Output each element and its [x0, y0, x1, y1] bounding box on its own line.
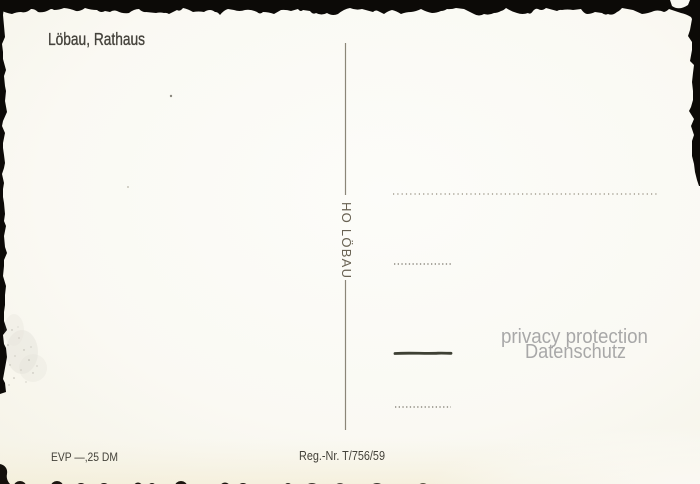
svg-text:Löbau, Rathaus: Löbau, Rathaus	[48, 29, 145, 49]
svg-text:Reg.-Nr. T/756/59: Reg.-Nr. T/756/59	[299, 449, 385, 463]
svg-text:EVP —,25 DM: EVP —,25 DM	[51, 450, 118, 464]
svg-text:HO LÖBAU: HO LÖBAU	[339, 202, 354, 278]
svg-text:Datenschutz: Datenschutz	[525, 341, 626, 363]
